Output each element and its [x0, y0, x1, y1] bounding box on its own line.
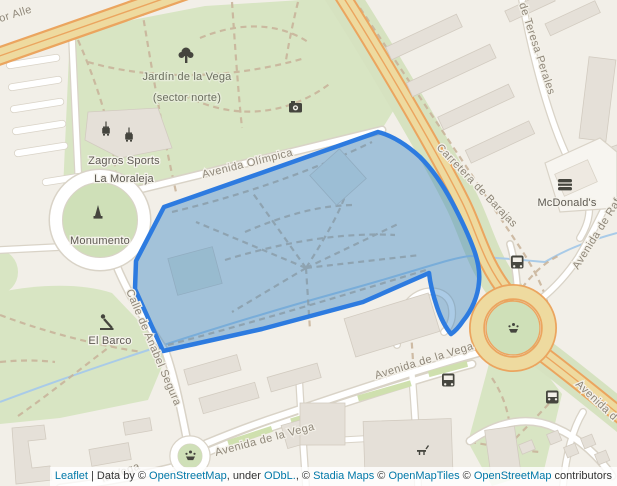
attribution-text: © — [374, 470, 388, 482]
map-tiles: dor Alle Jardín de la Vega (sector norte… — [0, 0, 617, 486]
attribution-text: , © — [296, 470, 313, 482]
openmaptiles-link[interactable]: OpenMapTiles — [388, 470, 459, 482]
poi-label-mcdonalds: McDonald's — [537, 197, 596, 209]
attribution-text: © — [460, 470, 474, 482]
openstreetmap-link[interactable]: OpenStreetMap — [149, 470, 227, 482]
poi-label-zagros-line2: La Moraleja — [94, 173, 154, 185]
monumento-roundabout — [56, 176, 144, 264]
openstreetmap-link-2[interactable]: OpenStreetMap — [474, 470, 552, 482]
park-label-jardin-line1: Jardín de la Vega — [142, 71, 232, 83]
bus-stop-icon-2 — [442, 374, 455, 387]
poi-label-el-barco: El Barco — [88, 335, 131, 347]
poi-label-zagros-line1: Zagros Sports — [88, 155, 160, 167]
poi-label-monumento: Monumento — [70, 235, 130, 247]
attribution-text: , under — [227, 470, 264, 482]
bus-stop-icon-1 — [511, 256, 524, 269]
bus-stop-icon-3 — [546, 391, 559, 404]
attribution-text: | Data by © — [88, 470, 149, 482]
park-label-jardin-line2: (sector norte) — [153, 92, 221, 104]
odbl-link[interactable]: ODbL. — [264, 470, 296, 482]
attribution-text: contributors — [551, 470, 612, 482]
leaflet-link[interactable]: Leaflet — [55, 470, 88, 482]
attribution-bar: Leaflet | Data by © OpenStreetMap, under… — [50, 467, 617, 486]
burger-icon — [558, 179, 572, 190]
map-canvas[interactable]: dor Alle Jardín de la Vega (sector norte… — [0, 0, 617, 486]
stadia-maps-link[interactable]: Stadia Maps — [313, 470, 374, 482]
